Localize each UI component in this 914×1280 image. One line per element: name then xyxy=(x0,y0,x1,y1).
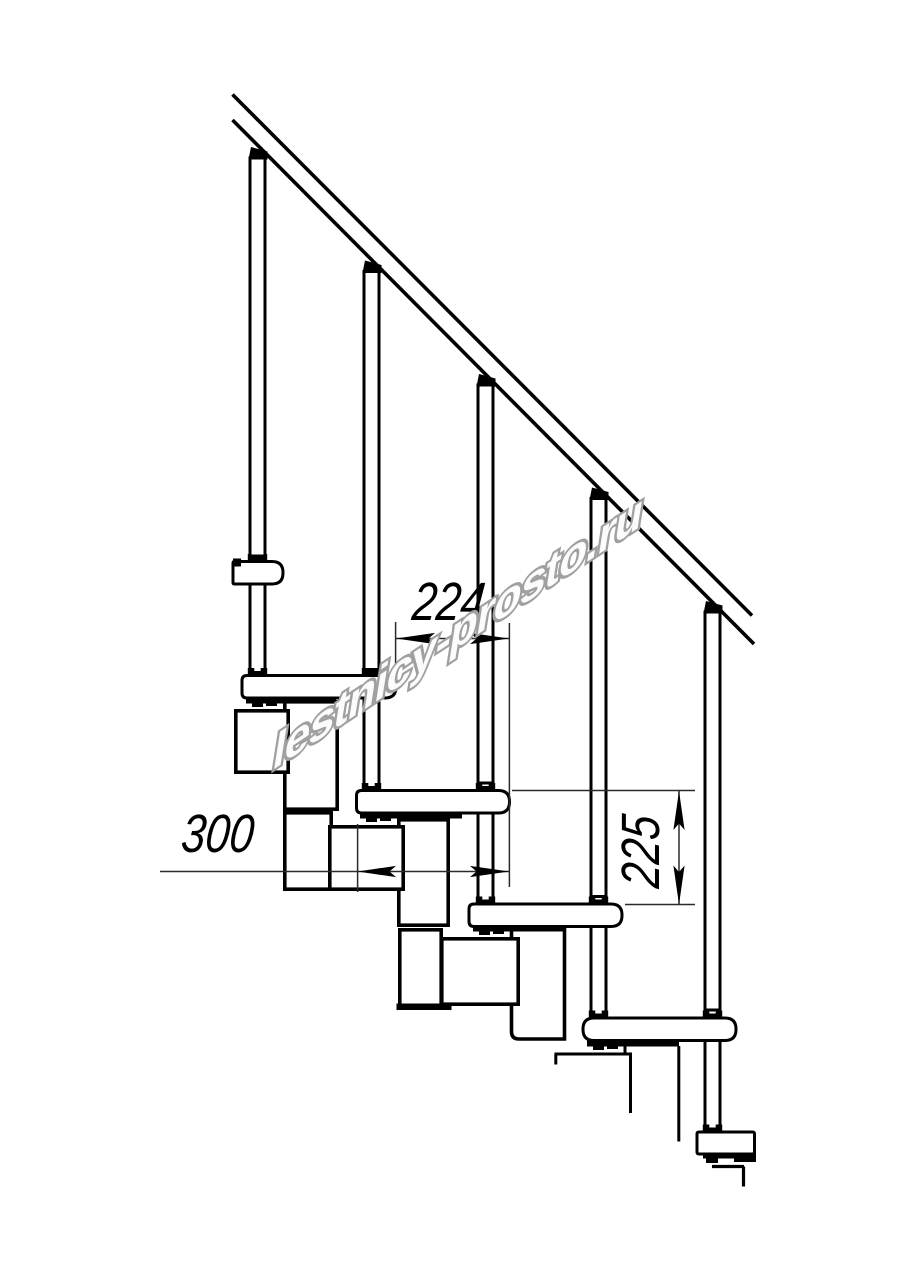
svg-text:300: 300 xyxy=(179,804,257,864)
svg-text:225: 225 xyxy=(611,811,671,891)
